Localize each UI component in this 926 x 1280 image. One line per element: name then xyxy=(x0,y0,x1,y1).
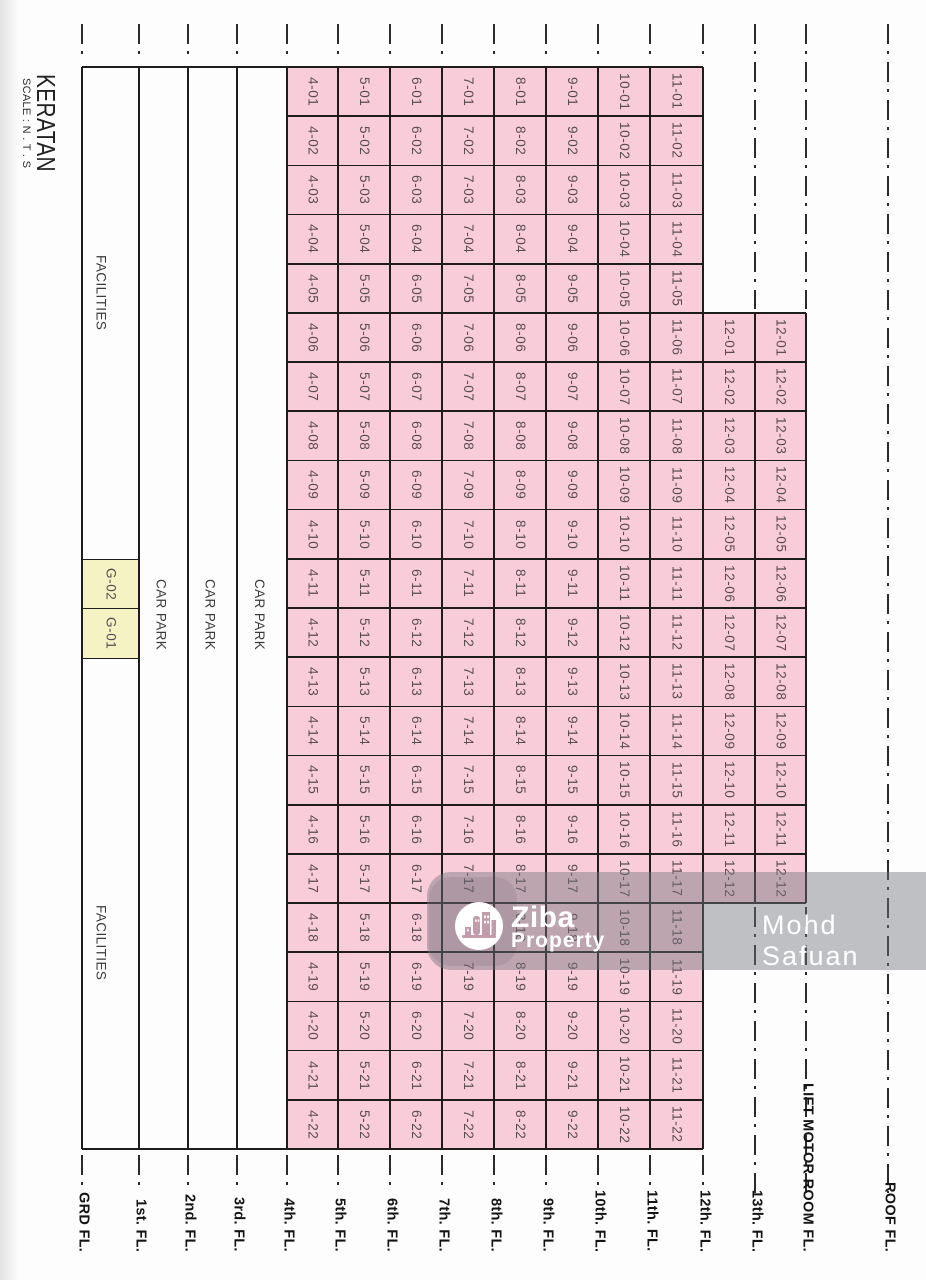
unit-cell: 9-09 xyxy=(565,470,579,499)
unit-cell-wrap: 5-18 xyxy=(338,903,390,952)
floor-level-dashline xyxy=(286,24,288,62)
floor-level-dashline xyxy=(187,1155,189,1193)
car-park-label: CAR PARK xyxy=(252,579,266,650)
unit-cell: 7-21 xyxy=(461,1061,475,1090)
grid-line-horizontal xyxy=(287,656,703,658)
unit-cell-wrap: 12-10 xyxy=(703,756,755,805)
unit-cell: 4-10 xyxy=(306,520,320,549)
unit-cell: 8-02 xyxy=(513,126,527,155)
unit-cell-wrap: 12-05 xyxy=(755,510,806,559)
grid-line-horizontal xyxy=(703,558,806,560)
floor-label: 8th. FL. xyxy=(488,1198,503,1252)
unit-cell-wrap: 12-09 xyxy=(703,706,755,755)
unit-cell-wrap: 10-13 xyxy=(598,657,650,706)
ground-unit-cell: G-01 xyxy=(104,617,118,649)
unit-cell: 7-02 xyxy=(461,126,475,155)
unit-cell: 6-21 xyxy=(409,1061,423,1090)
floor-label: 9th. FL. xyxy=(540,1198,555,1252)
unit-cell: 7-09 xyxy=(461,470,475,499)
unit-cell-wrap: 9-05 xyxy=(546,264,598,313)
unit-cell-wrap: 6-04 xyxy=(390,215,442,264)
unit-cell-wrap: 9-01 xyxy=(546,67,598,116)
floor-level-dashline xyxy=(754,24,756,309)
unit-cell: 6-13 xyxy=(409,667,423,696)
unit-cell-wrap: 4-16 xyxy=(287,805,338,854)
floor-level-dashline xyxy=(286,1155,288,1193)
unit-cell-wrap: 6-22 xyxy=(390,1100,442,1149)
unit-cell: 5-22 xyxy=(357,1110,371,1139)
unit-cell-wrap: 5-21 xyxy=(338,1051,390,1100)
grid-line-horizontal xyxy=(703,361,806,363)
unit-cell: 5-12 xyxy=(357,618,371,647)
unit-cell-wrap: 12-08 xyxy=(755,657,806,706)
unit-cell-wrap: 7-11 xyxy=(442,559,494,608)
unit-cell: 6-04 xyxy=(409,224,423,253)
unit-cell: 5-20 xyxy=(357,1011,371,1040)
unit-cell-wrap: 10-08 xyxy=(598,411,650,460)
unit-cell: 7-08 xyxy=(461,421,475,450)
unit-cell-wrap: 4-03 xyxy=(287,165,338,214)
unit-cell-wrap: 7-14 xyxy=(442,706,494,755)
unit-cell: 10-20 xyxy=(617,1007,631,1045)
unit-cell-wrap: 6-09 xyxy=(390,460,442,509)
unit-cell: 5-03 xyxy=(357,175,371,204)
unit-cell-wrap: 12-01 xyxy=(755,313,806,362)
unit-cell: 8-01 xyxy=(513,77,527,106)
unit-cell: 4-08 xyxy=(306,421,320,450)
unit-cell: 4-09 xyxy=(306,470,320,499)
unit-cell-wrap: 12-11 xyxy=(703,805,755,854)
unit-cell-wrap: 10-21 xyxy=(598,1051,650,1100)
unit-cell-wrap: 12-06 xyxy=(755,559,806,608)
unit-cell: 4-13 xyxy=(306,667,320,696)
unit-cell-wrap: 11-22 xyxy=(650,1100,703,1149)
unit-cell: 7-22 xyxy=(461,1110,475,1139)
unit-cell: 8-16 xyxy=(513,815,527,844)
unit-cell: 12-06 xyxy=(722,565,736,603)
unit-cell-wrap: 7-05 xyxy=(442,264,494,313)
unit-cell: 9-10 xyxy=(565,520,579,549)
unit-cell-wrap: 9-07 xyxy=(546,362,598,411)
floor-label: 3rd. FL. xyxy=(231,1197,246,1252)
unit-cell: 9-16 xyxy=(565,815,579,844)
unit-cell-wrap: 4-14 xyxy=(287,706,338,755)
unit-cell-wrap: 5-16 xyxy=(338,805,390,854)
unit-cell: 11-02 xyxy=(670,122,684,159)
unit-cell-wrap: 10-04 xyxy=(598,215,650,264)
unit-cell-wrap: 7-08 xyxy=(442,411,494,460)
unit-cell: 12-10 xyxy=(774,761,788,799)
unit-cell-wrap: 6-06 xyxy=(390,313,442,362)
floor-level-dashline xyxy=(702,24,704,62)
unit-cell-wrap: 10-03 xyxy=(598,165,650,214)
unit-cell-wrap: 10-06 xyxy=(598,313,650,362)
unit-cell-wrap: 11-06 xyxy=(650,313,703,362)
grid-line-horizontal xyxy=(703,410,806,412)
unit-cell: 8-11 xyxy=(513,569,527,597)
unit-cell: 10-04 xyxy=(617,220,631,258)
unit-cell: 7-14 xyxy=(461,716,475,745)
unit-cell: 7-01 xyxy=(461,77,475,106)
unit-cell: 5-06 xyxy=(357,323,371,352)
unit-cell: 6-19 xyxy=(409,962,423,991)
unit-cell-wrap: 5-22 xyxy=(338,1100,390,1149)
grid-line-horizontal xyxy=(287,755,703,757)
unit-cell: 5-07 xyxy=(357,372,371,401)
floor-label: 12th. FL. xyxy=(697,1190,712,1252)
unit-cell-wrap: 11-03 xyxy=(650,165,703,214)
unit-cell: 12-05 xyxy=(774,515,788,553)
unit-cell: 8-22 xyxy=(513,1110,527,1139)
unit-cell: 12-04 xyxy=(774,466,788,504)
grid-line-horizontal xyxy=(287,263,703,265)
unit-cell-wrap: 10-10 xyxy=(598,510,650,559)
floor-label: 1st. FL. xyxy=(133,1199,148,1252)
unit-cell-wrap: 8-12 xyxy=(494,608,546,657)
city-buildings-icon xyxy=(455,902,503,950)
unit-cell-wrap: 6-13 xyxy=(390,657,442,706)
unit-cell-wrap: 4-04 xyxy=(287,215,338,264)
unit-cell-wrap: 6-08 xyxy=(390,411,442,460)
unit-cell-wrap: 8-01 xyxy=(494,67,546,116)
unit-cell-wrap: 11-10 xyxy=(650,510,703,559)
unit-cell-wrap: 11-14 xyxy=(650,706,703,755)
unit-cell: 5-09 xyxy=(357,470,371,499)
unit-cell: 9-20 xyxy=(565,1011,579,1040)
unit-cell: 6-12 xyxy=(409,618,423,647)
unit-cell: 11-16 xyxy=(670,811,684,848)
unit-cell-wrap: 6-01 xyxy=(390,67,442,116)
ground-unit-cell-box: G-01 xyxy=(82,608,139,659)
unit-cell-wrap: 11-02 xyxy=(650,116,703,165)
floor-level-dashline xyxy=(649,1155,651,1193)
unit-cell-wrap: 4-21 xyxy=(287,1051,338,1100)
unit-cell: 4-22 xyxy=(306,1110,320,1139)
unit-cell: 7-16 xyxy=(461,815,475,844)
unit-cell-wrap: 12-03 xyxy=(755,411,806,460)
grid-line-vertical xyxy=(236,67,238,1149)
unit-cell-wrap: 6-15 xyxy=(390,756,442,805)
unit-cell-wrap: 9-09 xyxy=(546,460,598,509)
unit-cell-wrap: 4-01 xyxy=(287,67,338,116)
floor-level-dashline xyxy=(493,1155,495,1193)
unit-cell: 6-08 xyxy=(409,421,423,450)
grid-line-horizontal xyxy=(287,853,703,855)
unit-cell-wrap: 12-02 xyxy=(703,362,755,411)
unit-cell-wrap: 5-20 xyxy=(338,1001,390,1050)
unit-cell: 11-14 xyxy=(670,713,684,750)
unit-cell-wrap: 10-15 xyxy=(598,756,650,805)
unit-cell: 12-09 xyxy=(722,712,736,750)
grid-line-horizontal xyxy=(287,706,703,708)
scan-edge-shade xyxy=(0,0,20,1280)
unit-cell-wrap: 7-22 xyxy=(442,1100,494,1149)
unit-cell: 12-11 xyxy=(722,811,736,848)
unit-cell: 10-08 xyxy=(617,417,631,455)
unit-cell: 5-02 xyxy=(357,126,371,155)
unit-cell-wrap: 8-21 xyxy=(494,1051,546,1100)
grid-line-horizontal xyxy=(287,115,703,117)
unit-cell: 6-15 xyxy=(409,765,423,794)
unit-cell-wrap: 12-02 xyxy=(755,362,806,411)
unit-cell: 5-11 xyxy=(357,569,371,597)
unit-cell: 12-08 xyxy=(722,663,736,701)
unit-cell-wrap: 4-09 xyxy=(287,460,338,509)
unit-cell-wrap: 12-01 xyxy=(703,313,755,362)
grid-line-horizontal xyxy=(703,509,806,511)
unit-cell: 10-14 xyxy=(617,712,631,750)
unit-cell: 4-07 xyxy=(306,372,320,401)
floor-label: LIFT MOTOR ROOM FL. xyxy=(800,1083,815,1252)
unit-cell: 11-22 xyxy=(670,1106,684,1143)
unit-cell-wrap: 10-07 xyxy=(598,362,650,411)
unit-cell: 12-07 xyxy=(774,614,788,652)
unit-cell: 8-13 xyxy=(513,667,527,696)
unit-cell-wrap: 11-09 xyxy=(650,460,703,509)
unit-cell-wrap: 9-06 xyxy=(546,313,598,362)
unit-cell: 11-03 xyxy=(670,172,684,209)
unit-cell-wrap: 10-09 xyxy=(598,460,650,509)
unit-cell: 10-13 xyxy=(617,663,631,701)
car-park-label: CAR PARK xyxy=(154,579,168,650)
grid-line-horizontal xyxy=(703,804,806,806)
unit-cell: 9-04 xyxy=(565,224,579,253)
grid-line-horizontal xyxy=(287,1099,703,1101)
unit-cell-wrap: 6-02 xyxy=(390,116,442,165)
unit-cell: 12-07 xyxy=(722,614,736,652)
unit-cell-wrap: 12-07 xyxy=(755,608,806,657)
unit-cell-wrap: 9-10 xyxy=(546,510,598,559)
unit-cell: 11-20 xyxy=(670,1008,684,1045)
section-drawing: FACILITIESFACILITIESG-02G-01CAR PARKCAR … xyxy=(0,0,926,1280)
unit-cell: 5-05 xyxy=(357,274,371,303)
floor-level-dashline xyxy=(389,24,391,62)
unit-cell-wrap: 4-11 xyxy=(287,559,338,608)
unit-cell: 11-10 xyxy=(670,516,684,553)
unit-cell: 9-01 xyxy=(565,77,579,106)
grid-line-horizontal xyxy=(703,656,806,658)
unit-cell: 8-21 xyxy=(513,1061,527,1090)
unit-cell-wrap: 11-21 xyxy=(650,1051,703,1100)
unit-cell-wrap: 11-12 xyxy=(650,608,703,657)
scale-note: SCALE : N . T . S xyxy=(20,78,31,168)
unit-cell: 9-05 xyxy=(565,274,579,303)
unit-cell-wrap: 6-10 xyxy=(390,510,442,559)
unit-cell: 8-20 xyxy=(513,1011,527,1040)
unit-cell: 12-03 xyxy=(774,417,788,455)
unit-cell-wrap: 6-16 xyxy=(390,805,442,854)
unit-cell: 5-14 xyxy=(357,716,371,745)
unit-cell: 7-10 xyxy=(461,520,475,549)
unit-cell-wrap: 10-22 xyxy=(598,1100,650,1149)
grid-line-horizontal xyxy=(287,165,703,167)
unit-cell-wrap: 12-07 xyxy=(703,608,755,657)
unit-cell-wrap: 11-01 xyxy=(650,67,703,116)
unit-cell: 4-01 xyxy=(306,77,320,106)
unit-cell-wrap: 4-05 xyxy=(287,264,338,313)
unit-cell-wrap: 5-05 xyxy=(338,264,390,313)
unit-cell: 4-15 xyxy=(306,765,320,794)
drawing-title: KERATAN xyxy=(33,74,59,172)
unit-cell-wrap: 7-06 xyxy=(442,313,494,362)
unit-cell: 4-20 xyxy=(306,1011,320,1040)
unit-cell: 4-06 xyxy=(306,323,320,352)
unit-cell-wrap: 5-12 xyxy=(338,608,390,657)
unit-cell: 6-14 xyxy=(409,716,423,745)
unit-cell: 10-06 xyxy=(617,319,631,357)
unit-cell: 4-18 xyxy=(306,913,320,942)
floor-level-dashline xyxy=(887,24,889,1193)
unit-cell: 10-21 xyxy=(617,1056,631,1094)
unit-cell: 11-01 xyxy=(670,73,684,110)
unit-cell-wrap: 11-20 xyxy=(650,1001,703,1050)
grid-line-vertical xyxy=(187,67,189,1149)
floor-level-dashline xyxy=(597,1155,599,1193)
unit-cell: 4-04 xyxy=(306,224,320,253)
unit-cell: 9-12 xyxy=(565,618,579,647)
unit-cell-wrap: 12-06 xyxy=(703,559,755,608)
grid-line-horizontal xyxy=(287,1001,703,1003)
unit-cell-wrap: 8-08 xyxy=(494,411,546,460)
unit-cell-wrap: 11-16 xyxy=(650,805,703,854)
floor-label: 10th. FL. xyxy=(592,1190,607,1252)
unit-cell: 8-04 xyxy=(513,224,527,253)
unit-cell-wrap: 11-05 xyxy=(650,264,703,313)
watermark-author: Mohd Safuan xyxy=(762,910,926,972)
unit-cell: 10-01 xyxy=(617,73,631,111)
unit-cell-wrap: 7-01 xyxy=(442,67,494,116)
unit-cell: 11-15 xyxy=(670,762,684,799)
grid-line-horizontal xyxy=(703,312,806,314)
unit-cell: 12-03 xyxy=(722,417,736,455)
unit-cell: 11-11 xyxy=(670,566,684,602)
grid-line-horizontal xyxy=(287,312,703,314)
grid-line-horizontal xyxy=(703,607,806,609)
unit-cell: 7-12 xyxy=(461,618,475,647)
unit-cell-wrap: 8-09 xyxy=(494,460,546,509)
unit-cell: 10-11 xyxy=(617,565,631,602)
grid-line-horizontal xyxy=(287,460,703,462)
facilities-label: FACILITIES xyxy=(94,905,108,980)
unit-cell-wrap: 11-11 xyxy=(650,559,703,608)
unit-cell-wrap: 5-08 xyxy=(338,411,390,460)
unit-cell-wrap: 4-22 xyxy=(287,1100,338,1149)
unit-cell-wrap: 8-02 xyxy=(494,116,546,165)
unit-cell-wrap: 7-10 xyxy=(442,510,494,559)
unit-cell-wrap: 9-02 xyxy=(546,116,598,165)
unit-cell-wrap: 11-07 xyxy=(650,362,703,411)
unit-cell: 6-06 xyxy=(409,323,423,352)
unit-cell-wrap: 5-15 xyxy=(338,756,390,805)
unit-cell: 6-16 xyxy=(409,815,423,844)
unit-cell: 9-06 xyxy=(565,323,579,352)
unit-cell-wrap: 10-02 xyxy=(598,116,650,165)
unit-cell: 12-02 xyxy=(774,368,788,406)
unit-cell-wrap: 4-17 xyxy=(287,854,338,903)
grid-line-horizontal xyxy=(703,755,806,757)
unit-cell: 7-05 xyxy=(461,274,475,303)
unit-cell-wrap: 5-03 xyxy=(338,165,390,214)
unit-cell-wrap: 5-14 xyxy=(338,706,390,755)
unit-cell: 6-18 xyxy=(409,913,423,942)
unit-cell: 9-08 xyxy=(565,421,579,450)
floor-level-dashline xyxy=(81,24,83,62)
unit-cell: 11-04 xyxy=(670,221,684,258)
unit-cell: 5-08 xyxy=(357,421,371,450)
unit-cell-wrap: 8-07 xyxy=(494,362,546,411)
unit-cell-wrap: 7-21 xyxy=(442,1051,494,1100)
grid-line-horizontal xyxy=(703,706,806,708)
unit-cell: 8-12 xyxy=(513,618,527,647)
unit-cell: 8-15 xyxy=(513,765,527,794)
unit-cell-wrap: 9-15 xyxy=(546,756,598,805)
unit-cell: 10-02 xyxy=(617,122,631,160)
floor-level-dashline xyxy=(337,1155,339,1193)
unit-cell-wrap: 4-02 xyxy=(287,116,338,165)
unit-cell: 5-17 xyxy=(357,864,371,893)
unit-cell-wrap: 7-03 xyxy=(442,165,494,214)
unit-cell: 9-13 xyxy=(565,667,579,696)
unit-cell-wrap: 5-02 xyxy=(338,116,390,165)
grid-line-horizontal xyxy=(287,509,703,511)
unit-cell: 5-19 xyxy=(357,962,371,991)
unit-cell-wrap: 6-21 xyxy=(390,1051,442,1100)
unit-cell: 10-09 xyxy=(617,466,631,504)
unit-cell-wrap: 9-12 xyxy=(546,608,598,657)
unit-cell: 12-08 xyxy=(774,663,788,701)
unit-cell: 11-12 xyxy=(670,614,684,651)
unit-cell: 8-06 xyxy=(513,323,527,352)
unit-cell: 4-17 xyxy=(306,864,320,893)
unit-cell: 6-05 xyxy=(409,274,423,303)
unit-cell: 8-09 xyxy=(513,470,527,499)
unit-cell: 6-01 xyxy=(409,77,423,106)
floor-label: 6th. FL. xyxy=(384,1198,399,1252)
unit-cell: 12-11 xyxy=(774,811,788,848)
unit-cell: 7-11 xyxy=(461,569,475,597)
unit-cell-wrap: 6-14 xyxy=(390,706,442,755)
floor-level-dashline xyxy=(545,1155,547,1193)
unit-cell-wrap: 7-20 xyxy=(442,1001,494,1050)
unit-cell: 4-11 xyxy=(306,569,320,597)
unit-cell-wrap: 8-11 xyxy=(494,559,546,608)
unit-cell: 8-10 xyxy=(513,520,527,549)
unit-cell-wrap: 4-12 xyxy=(287,608,338,657)
floor-label: 7th. FL. xyxy=(436,1198,451,1252)
unit-cell-wrap: 9-04 xyxy=(546,215,598,264)
unit-cell: 7-15 xyxy=(461,765,475,794)
grid-line-horizontal xyxy=(703,460,806,462)
floor-level-dashline xyxy=(545,24,547,62)
grid-line-horizontal xyxy=(287,361,703,363)
unit-cell: 8-14 xyxy=(513,716,527,745)
unit-cell-wrap: 7-09 xyxy=(442,460,494,509)
floor-level-dashline xyxy=(81,1155,83,1193)
unit-cell-wrap: 11-04 xyxy=(650,215,703,264)
unit-cell-wrap: 11-08 xyxy=(650,411,703,460)
unit-cell-wrap: 9-11 xyxy=(546,559,598,608)
unit-cell: 5-21 xyxy=(357,1061,371,1090)
unit-cell: 8-08 xyxy=(513,421,527,450)
unit-cell-wrap: 5-13 xyxy=(338,657,390,706)
unit-cell: 12-01 xyxy=(722,319,736,357)
floor-label: 5th. FL. xyxy=(332,1198,347,1252)
grid-line-horizontal xyxy=(287,804,703,806)
unit-cell: 5-15 xyxy=(357,765,371,794)
grid-line-horizontal xyxy=(82,66,703,68)
unit-cell-wrap: 12-10 xyxy=(755,756,806,805)
unit-cell: 7-13 xyxy=(461,667,475,696)
